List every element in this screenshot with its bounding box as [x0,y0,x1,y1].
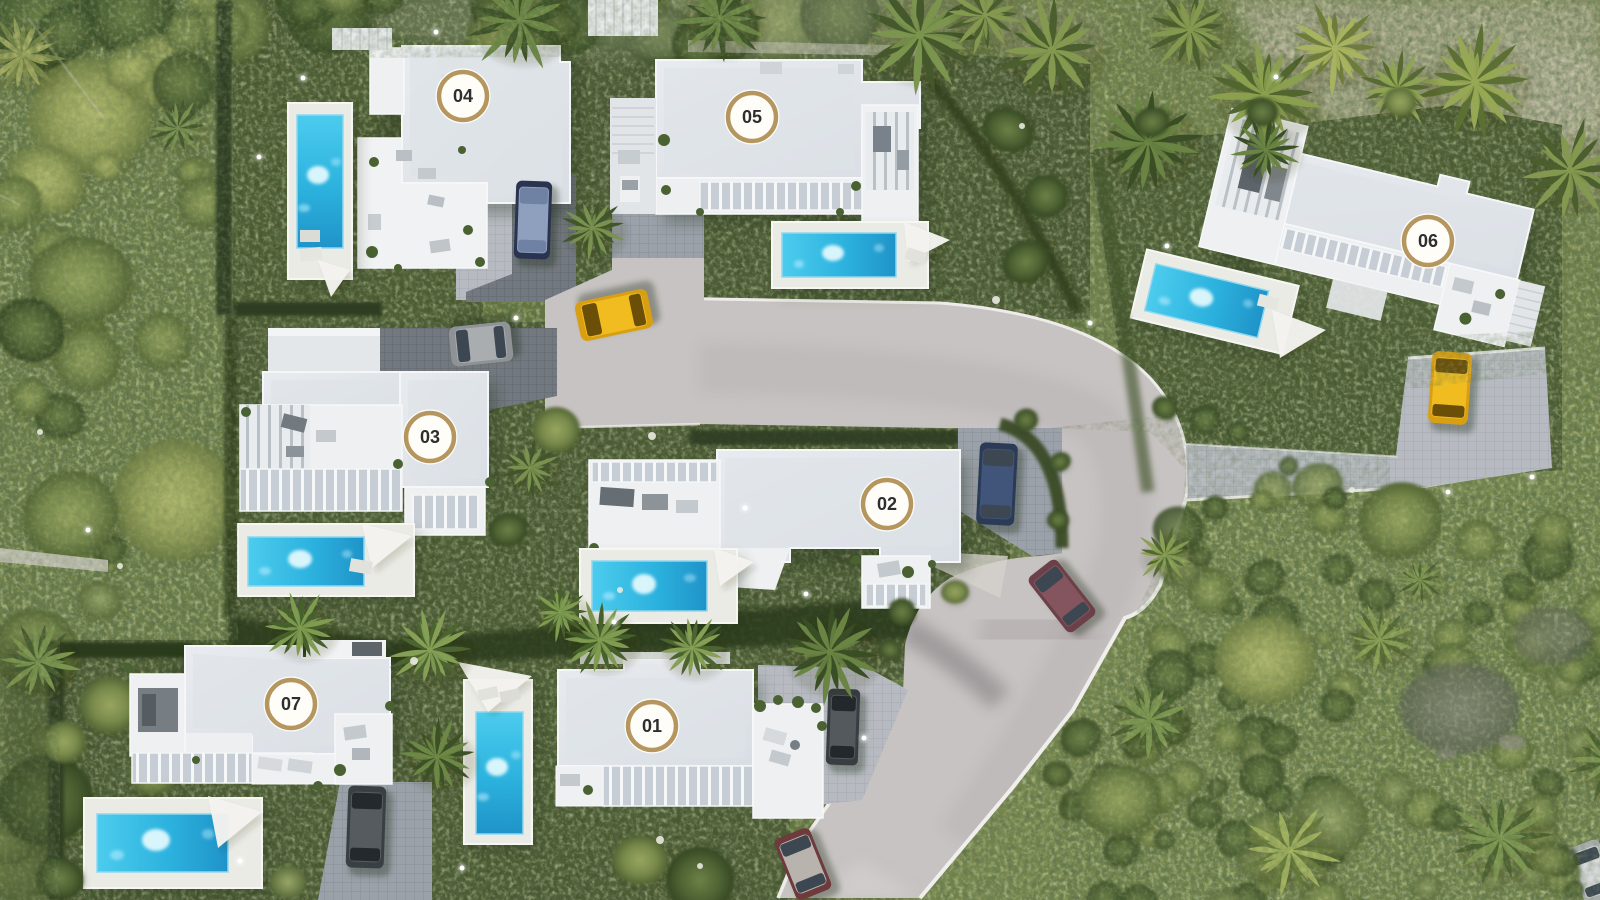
svg-text:05: 05 [742,107,762,127]
svg-text:07: 07 [281,694,301,714]
svg-text:06: 06 [1418,231,1438,251]
svg-text:01: 01 [642,716,662,736]
svg-text:02: 02 [877,494,897,514]
svg-text:03: 03 [420,427,440,447]
svg-text:04: 04 [453,86,473,106]
